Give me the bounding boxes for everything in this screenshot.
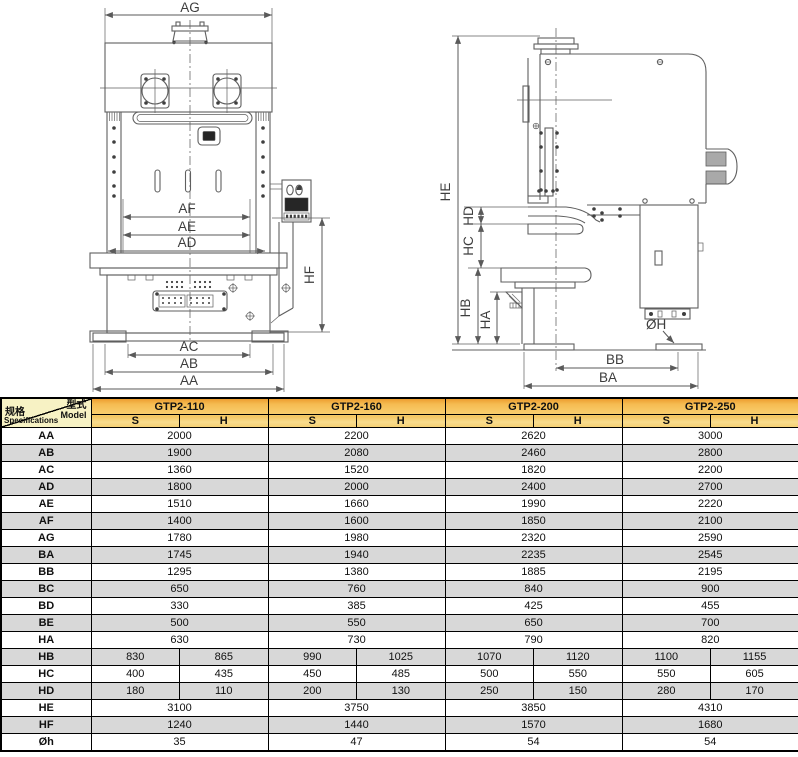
row-label: BD — [1, 598, 91, 615]
value-cell: 54 — [445, 734, 622, 751]
value-cell: 1025 — [357, 649, 446, 666]
value-cell: 35 — [91, 734, 268, 751]
value-cell: 990 — [268, 649, 357, 666]
corner-type-en: Model — [61, 411, 87, 420]
value-cell: 865 — [180, 649, 269, 666]
row-label: Øh — [1, 734, 91, 751]
technical-drawing: AG — [0, 0, 798, 397]
value-cell: 110 — [180, 683, 269, 700]
value-cell: 400 — [91, 666, 180, 683]
value-cell: 1155 — [711, 649, 798, 666]
value-cell: 840 — [445, 581, 622, 598]
model-header: GTP2-110 — [91, 398, 268, 415]
row-label: AD — [1, 479, 91, 496]
value-cell: 435 — [180, 666, 269, 683]
value-cell: 1570 — [445, 717, 622, 734]
table-row: HC400435450485500550550605 — [1, 666, 798, 683]
table-row: BB1295138018852195 — [1, 564, 798, 581]
side-view: HE — [438, 28, 737, 389]
value-cell: 130 — [357, 683, 446, 700]
row-label: AG — [1, 530, 91, 547]
row-label: HB — [1, 649, 91, 666]
sub-header-h: H — [180, 415, 269, 428]
dim-label-ab: AB — [180, 356, 198, 371]
row-label: BE — [1, 615, 91, 632]
value-cell: 1295 — [91, 564, 268, 581]
value-cell: 2100 — [622, 513, 798, 530]
row-label: BC — [1, 581, 91, 598]
value-cell: 425 — [445, 598, 622, 615]
dim-label-ha: HA — [478, 311, 493, 330]
value-cell: 455 — [622, 598, 798, 615]
dim-label-hf: HF — [302, 266, 317, 284]
dim-label-ac: AC — [180, 339, 199, 354]
value-cell: 700 — [622, 615, 798, 632]
value-cell: 330 — [91, 598, 268, 615]
table-row: HF1240144015701680 — [1, 717, 798, 734]
dim-label-aa: AA — [180, 373, 198, 388]
table-row: AG1780198023202590 — [1, 530, 798, 547]
value-cell: 450 — [268, 666, 357, 683]
knockout-bracket — [506, 292, 522, 308]
value-cell: 550 — [534, 666, 623, 683]
sub-header-h: H — [357, 415, 446, 428]
value-cell: 650 — [445, 615, 622, 632]
sub-header-s: S — [622, 415, 711, 428]
value-cell: 2320 — [445, 530, 622, 547]
value-cell: 1440 — [268, 717, 445, 734]
dim-label-hc: HC — [461, 236, 476, 256]
value-cell: 1940 — [268, 547, 445, 564]
row-label: HC — [1, 666, 91, 683]
value-cell: 485 — [357, 666, 446, 683]
table-row: HA630730790820 — [1, 632, 798, 649]
value-cell: 1850 — [445, 513, 622, 530]
value-cell: 550 — [268, 615, 445, 632]
front-view: AG — [90, 0, 330, 392]
dim-label-bb: BB — [606, 352, 624, 367]
value-cell: 1100 — [622, 649, 711, 666]
crosshair-marks — [228, 283, 291, 321]
press-drawing-svg: AG — [0, 0, 798, 397]
sub-header-h: H — [711, 415, 798, 428]
value-cell: 3750 — [268, 700, 445, 717]
motor — [706, 149, 737, 184]
table-row: AF1400160018502100 — [1, 513, 798, 530]
value-cell: 830 — [91, 649, 180, 666]
dim-label-ae: AE — [178, 219, 196, 234]
value-cell: 650 — [91, 581, 268, 598]
value-cell: 500 — [445, 666, 534, 683]
row-label: AC — [1, 462, 91, 479]
row-label: HE — [1, 700, 91, 717]
value-cell: 790 — [445, 632, 622, 649]
dim-label-oh: ØH — [646, 317, 666, 332]
value-cell: 1520 — [268, 462, 445, 479]
table-row: HE3100375038504310 — [1, 700, 798, 717]
value-cell: 630 — [91, 632, 268, 649]
value-cell: 2545 — [622, 547, 798, 564]
specifications-table: 型式 Model 规格 Specifications GTP2-110 GTP2… — [0, 397, 798, 752]
value-cell: 200 — [268, 683, 357, 700]
value-cell: 2590 — [622, 530, 798, 547]
value-cell: 385 — [268, 598, 445, 615]
dim-label-ad: AD — [178, 235, 197, 250]
value-cell: 1510 — [91, 496, 268, 513]
row-label: BB — [1, 564, 91, 581]
row-label: HF — [1, 717, 91, 734]
value-cell: 2200 — [622, 462, 798, 479]
table-header: 型式 Model 规格 Specifications GTP2-110 GTP2… — [1, 398, 798, 428]
value-cell: 280 — [622, 683, 711, 700]
value-cell: 3100 — [91, 700, 268, 717]
row-label: AE — [1, 496, 91, 513]
control-panel — [270, 180, 311, 323]
table-row: BD330385425455 — [1, 598, 798, 615]
dim-label-ba: BA — [599, 370, 617, 385]
dim-label-he: HE — [438, 183, 453, 202]
corner-spec-en: Specifications — [4, 417, 58, 425]
value-cell: 2620 — [445, 428, 622, 445]
value-cell: 2400 — [445, 479, 622, 496]
value-cell: 2195 — [622, 564, 798, 581]
table-row: AC1360152018202200 — [1, 462, 798, 479]
value-cell: 1380 — [268, 564, 445, 581]
value-cell: 820 — [622, 632, 798, 649]
value-cell: 54 — [622, 734, 798, 751]
flange-plate-right — [213, 69, 241, 113]
flange-plate-left — [141, 69, 169, 113]
sub-header-s: S — [91, 415, 180, 428]
value-cell: 1885 — [445, 564, 622, 581]
corner-cell: 型式 Model 规格 Specifications — [1, 398, 91, 428]
value-cell: 1120 — [534, 649, 623, 666]
value-cell: 4310 — [622, 700, 798, 717]
row-label: AF — [1, 513, 91, 530]
table-row: BE500550650700 — [1, 615, 798, 632]
table-row: AE1510166019902220 — [1, 496, 798, 513]
model-header: GTP2-200 — [445, 398, 622, 415]
spec-table-body: AA2000220026203000AB1900208024602800AC13… — [1, 428, 798, 751]
value-cell: 250 — [445, 683, 534, 700]
value-cell: 550 — [622, 666, 711, 683]
row-label: HD — [1, 683, 91, 700]
value-cell: 2235 — [445, 547, 622, 564]
table-row: HB83086599010251070112011001155 — [1, 649, 798, 666]
table-row: AB1900208024602800 — [1, 445, 798, 462]
value-cell: 2700 — [622, 479, 798, 496]
value-cell: 2000 — [91, 428, 268, 445]
value-cell: 760 — [268, 581, 445, 598]
value-cell: 180 — [91, 683, 180, 700]
value-cell: 2080 — [268, 445, 445, 462]
value-cell: 150 — [534, 683, 623, 700]
value-cell: 1600 — [268, 513, 445, 530]
sub-header-s: S — [268, 415, 357, 428]
table-row: BC650760840900 — [1, 581, 798, 598]
table-row: Øh35475454 — [1, 734, 798, 751]
sub-header-h: H — [534, 415, 623, 428]
row-label: AA — [1, 428, 91, 445]
table-row: HD180110200130250150280170 — [1, 683, 798, 700]
value-cell: 2460 — [445, 445, 622, 462]
value-cell: 3000 — [622, 428, 798, 445]
value-cell: 500 — [91, 615, 268, 632]
value-cell: 47 — [268, 734, 445, 751]
value-cell: 1360 — [91, 462, 268, 479]
value-cell: 605 — [711, 666, 798, 683]
rear-cabinet — [640, 199, 703, 319]
value-cell: 2000 — [268, 479, 445, 496]
value-cell: 1820 — [445, 462, 622, 479]
value-cell: 1980 — [268, 530, 445, 547]
value-cell: 1800 — [91, 479, 268, 496]
value-cell: 1900 — [91, 445, 268, 462]
model-header: GTP2-250 — [622, 398, 798, 415]
value-cell: 1400 — [91, 513, 268, 530]
value-cell: 170 — [711, 683, 798, 700]
sub-header-s: S — [445, 415, 534, 428]
dim-label-ag: AG — [180, 0, 200, 15]
value-cell: 2200 — [268, 428, 445, 445]
value-cell: 1745 — [91, 547, 268, 564]
value-cell: 1780 — [91, 530, 268, 547]
row-label: AB — [1, 445, 91, 462]
upright-bolts — [112, 126, 265, 198]
model-header: GTP2-160 — [268, 398, 445, 415]
value-cell: 1680 — [622, 717, 798, 734]
value-cell: 2800 — [622, 445, 798, 462]
table-row: BA1745194022352545 — [1, 547, 798, 564]
table-row: AA2000220026203000 — [1, 428, 798, 445]
dim-label-hd: HD — [461, 206, 476, 226]
value-cell: 3850 — [445, 700, 622, 717]
cushion-holes — [166, 281, 211, 288]
value-cell: 730 — [268, 632, 445, 649]
dim-label-hb: HB — [458, 299, 473, 318]
row-label: HA — [1, 632, 91, 649]
value-cell: 900 — [622, 581, 798, 598]
row-label: BA — [1, 547, 91, 564]
value-cell: 2220 — [622, 496, 798, 513]
value-cell: 1070 — [445, 649, 534, 666]
value-cell: 1660 — [268, 496, 445, 513]
value-cell: 1240 — [91, 717, 268, 734]
dim-label-af: AF — [178, 201, 195, 216]
value-cell: 1990 — [445, 496, 622, 513]
table-row: AD1800200024002700 — [1, 479, 798, 496]
